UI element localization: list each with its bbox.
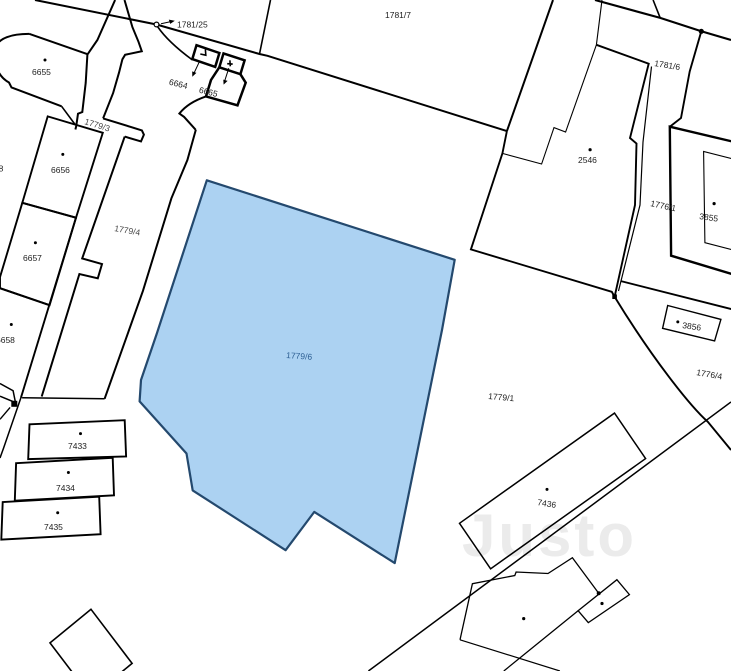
svg-text:1779/6: 1779/6 xyxy=(286,350,313,362)
svg-text:Justo: Justo xyxy=(462,502,637,569)
svg-text:6656: 6656 xyxy=(51,165,70,175)
svg-text:6657: 6657 xyxy=(23,253,42,263)
svg-text:2546: 2546 xyxy=(578,155,597,165)
svg-text:1781/7: 1781/7 xyxy=(385,10,411,20)
svg-text:7434: 7434 xyxy=(56,483,75,493)
svg-text:6658: 6658 xyxy=(0,335,15,345)
svg-text:7433: 7433 xyxy=(68,441,87,451)
svg-text:7435: 7435 xyxy=(44,522,63,532)
svg-text:0/8: 0/8 xyxy=(0,164,4,174)
svg-text:6655: 6655 xyxy=(32,67,51,77)
svg-text:1781/25: 1781/25 xyxy=(177,20,208,30)
